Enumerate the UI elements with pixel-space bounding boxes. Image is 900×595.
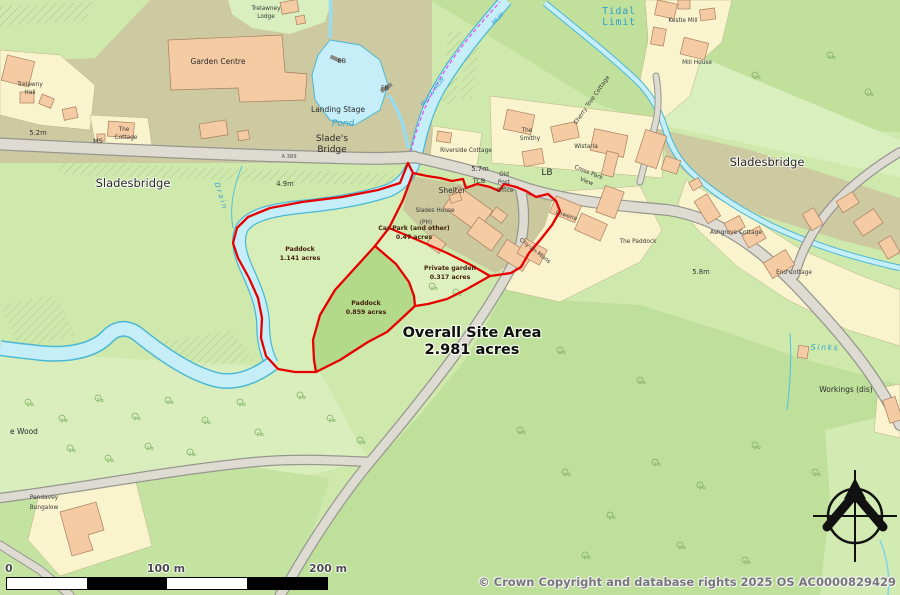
- map-label: View: [579, 177, 594, 188]
- map-canvas: TrelawneyLodgeGarden CentreTrelawnyHallF…: [0, 0, 900, 595]
- map-label: Sladesbridge: [730, 155, 805, 169]
- map-label: Slade's: [316, 134, 348, 144]
- map-label: Wistaria: [574, 144, 598, 150]
- map-label: Pond: [332, 119, 355, 129]
- map-label: The: [521, 128, 533, 134]
- map-label: Limit: [602, 17, 636, 28]
- scale-200m-label: 200 m: [309, 562, 347, 575]
- copyright-notice: © Crown Copyright and database rights 20…: [478, 575, 896, 589]
- scale-bar-segments: [6, 577, 328, 590]
- map-label: TCB: [472, 177, 486, 185]
- map-label: Trelawney: [250, 6, 281, 12]
- map-label: LB: [541, 168, 552, 178]
- map-label: Tidal: [602, 6, 636, 17]
- map-label: Old: [499, 172, 509, 178]
- map-label: Smithy: [520, 136, 541, 142]
- map-label: 4.9m: [276, 180, 294, 188]
- map-label: 1.141 acres: [280, 255, 321, 262]
- map-label: Slades House: [415, 208, 455, 214]
- map-label: Cottage: [115, 135, 138, 141]
- map-label: FB: [338, 57, 346, 65]
- map-label: Overall Site Area: [403, 325, 542, 341]
- map-label: Bridge: [317, 145, 347, 155]
- map-label: 0.317 acres: [430, 274, 471, 281]
- map-label: Mill House: [682, 60, 712, 66]
- map-label: Drain: [213, 181, 230, 211]
- map-label: 5.7m: [471, 165, 489, 173]
- map-label: Trelawny: [16, 82, 43, 88]
- map-label: Pendavey: [30, 495, 59, 501]
- map-label: The: [118, 127, 130, 133]
- map-label: Ashgrove Cottage: [710, 230, 762, 236]
- map-label: Paddock: [285, 246, 315, 253]
- map-label: Bungalow: [30, 505, 59, 511]
- map-label: Hall: [24, 90, 36, 96]
- map-label: 2.981 acres: [425, 342, 520, 358]
- map-label: The Paddock: [619, 239, 658, 245]
- map-label: Paddock: [351, 300, 381, 307]
- map-label: 5.2m: [29, 129, 47, 137]
- map-label: Car Park (and other): [378, 225, 450, 232]
- map-label: Landing Stage: [311, 105, 365, 114]
- map-label: Garden Centre: [191, 57, 246, 66]
- map-label: e Wood: [10, 427, 38, 436]
- map-label: Shelter: [439, 186, 467, 195]
- site-plan-map: TrelawneyLodgeGarden CentreTrelawnyHallF…: [0, 0, 900, 595]
- map-label: Office: [497, 188, 514, 194]
- map-label: 0.859 acres: [346, 309, 387, 316]
- scale-bar: 0 100 m 200 m: [6, 562, 346, 592]
- map-label: Sinks: [811, 343, 840, 352]
- scale-100m-label: 100 m: [147, 562, 185, 575]
- map-label: FB: [381, 84, 389, 92]
- map-label: MS: [93, 137, 103, 145]
- map-label: Kestle Mill: [668, 18, 698, 24]
- map-label: End Cottage: [776, 270, 812, 276]
- map-label: Lodge: [257, 14, 275, 20]
- scale-zero-label: 0: [5, 562, 13, 575]
- map-label: A 389: [281, 154, 296, 160]
- map-label: Post: [498, 180, 511, 186]
- map-label: 0.47 acres: [396, 234, 433, 241]
- map-label: Workings (dis): [819, 385, 873, 394]
- map-label: 5.8m: [692, 268, 710, 276]
- map-label: Private garden: [424, 265, 476, 272]
- map-label: Sladesbridge: [96, 176, 171, 190]
- map-label: Riverside Cottage: [440, 148, 492, 154]
